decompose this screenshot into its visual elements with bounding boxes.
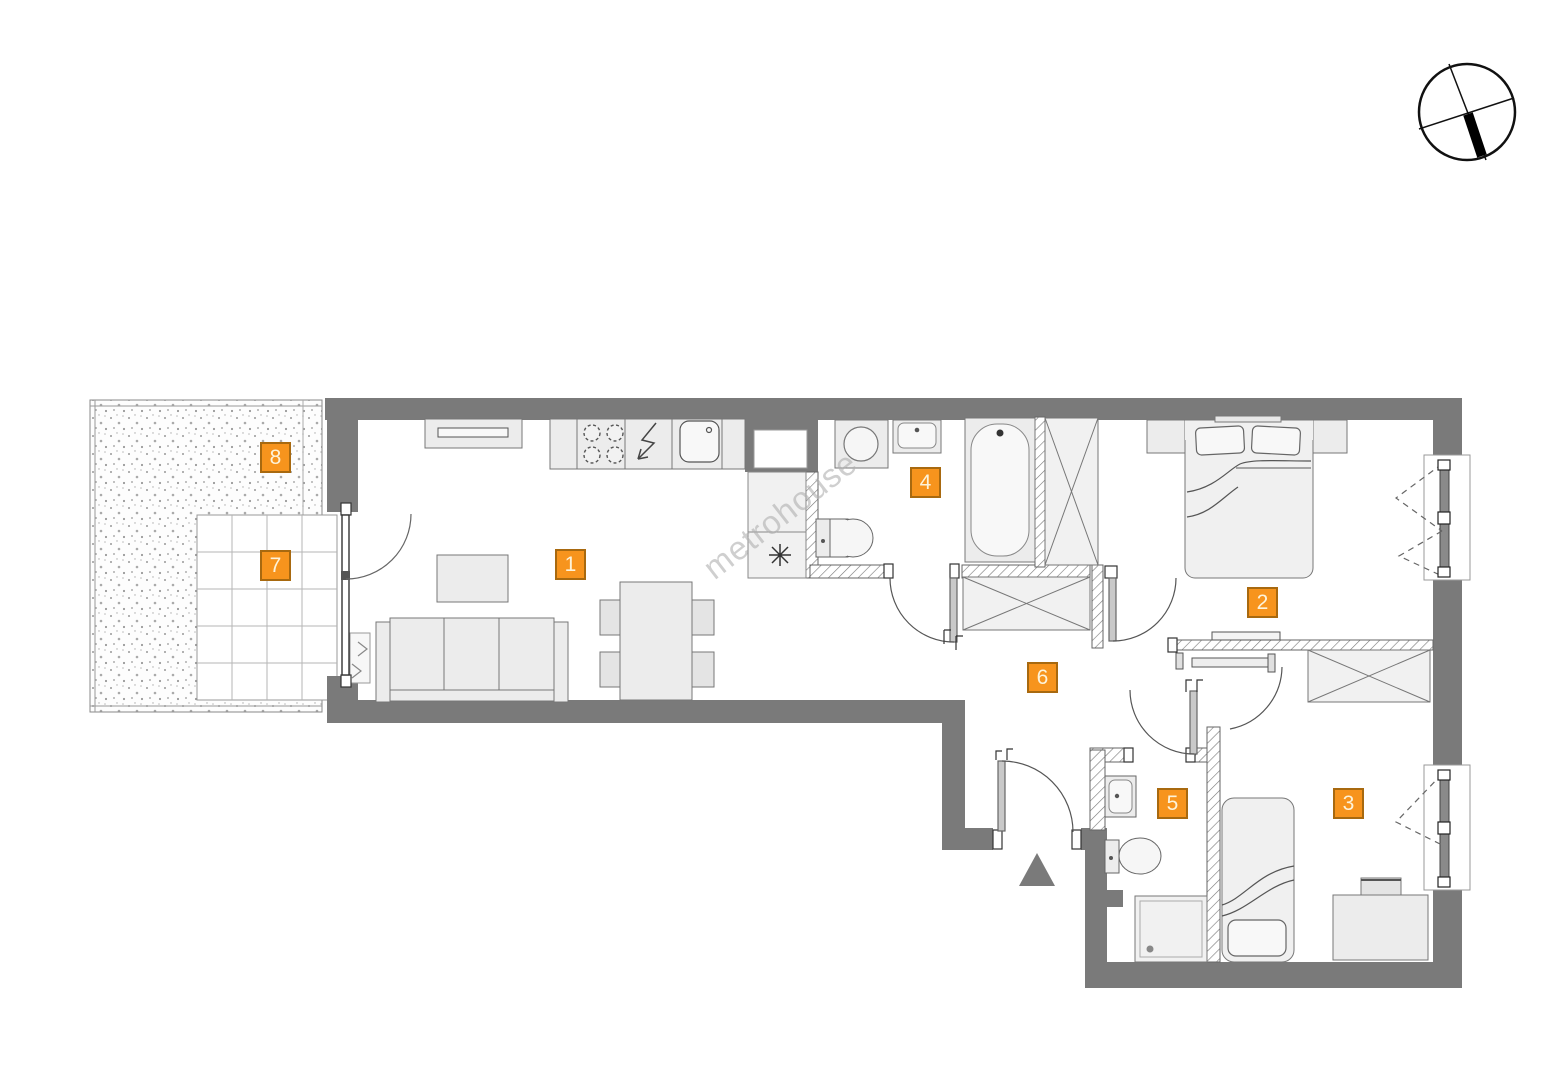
door-leaf: [1190, 691, 1197, 754]
north-indicator-icon: [1419, 64, 1515, 160]
chair: [692, 600, 714, 635]
wardrobe: [1308, 650, 1430, 702]
floor-plan-page: metrohouse 1 2 3 4 5 6 7 8: [0, 0, 1559, 1080]
toilet-icon: [816, 519, 873, 557]
wall-living-bottom: [327, 700, 965, 723]
door-leaf: [950, 578, 957, 642]
wall-bottom-right: [1085, 962, 1462, 988]
dining-table-set: [600, 582, 714, 700]
room-3: [1222, 650, 1430, 962]
room-badge-8: 8: [260, 442, 291, 473]
window-room-3: [1396, 765, 1470, 890]
pillow: [1228, 920, 1286, 956]
nightstand: [1313, 420, 1347, 453]
shaft-niche: [754, 430, 807, 468]
wall-niche-top: [1107, 890, 1123, 907]
wall-entrance-right: [1081, 828, 1107, 850]
wc: [1105, 776, 1207, 962]
window-bedroom-2: [1396, 455, 1470, 580]
shower-icon: [1135, 896, 1207, 962]
room-badge-2: 2: [1247, 587, 1278, 618]
coffee-table: [437, 555, 508, 602]
single-bed: [1222, 798, 1294, 962]
bathtub-icon: [965, 418, 1035, 562]
pillow: [1195, 426, 1244, 455]
radiator: [350, 633, 370, 683]
bathroom-sink-icon: [893, 420, 941, 453]
room-badge-7: 7: [260, 550, 291, 581]
sink-icon: [680, 421, 719, 462]
wall-below-entrance: [1085, 850, 1107, 964]
entrance-door-leaf: [998, 761, 1005, 831]
room-badge-3: 3: [1333, 788, 1364, 819]
desk: [1333, 895, 1428, 960]
hallway-wardrobe: [963, 577, 1090, 630]
room-badge-4: 4: [910, 467, 941, 498]
chair: [600, 600, 622, 635]
terrace-tiles: [197, 515, 337, 700]
double-bed: [1185, 416, 1313, 578]
wall-entrance-left: [942, 828, 993, 850]
room-badge-1: 1: [555, 549, 586, 580]
chair: [600, 652, 622, 687]
room-badge-6: 6: [1027, 662, 1058, 693]
wc-sink-icon: [1105, 776, 1136, 817]
room-3-sliding-door: [1176, 632, 1280, 672]
shaft-wardrobe: [1045, 418, 1098, 565]
sofa: [376, 618, 568, 702]
wc-toilet-icon: [1105, 838, 1161, 874]
door-leaf: [1109, 578, 1116, 641]
wall-left-upper: [327, 420, 358, 512]
entrance-marker-icon: [1019, 853, 1055, 886]
nightstand: [1147, 420, 1185, 453]
dining-table: [620, 582, 692, 700]
wall-top: [325, 398, 1462, 420]
living-room: [350, 555, 714, 702]
kitchen: [425, 419, 745, 469]
room-badge-5: 5: [1157, 788, 1188, 819]
hallway: [963, 577, 1090, 630]
chair: [692, 652, 714, 687]
bedroom-2: [1147, 416, 1347, 578]
pillow: [1251, 426, 1300, 455]
